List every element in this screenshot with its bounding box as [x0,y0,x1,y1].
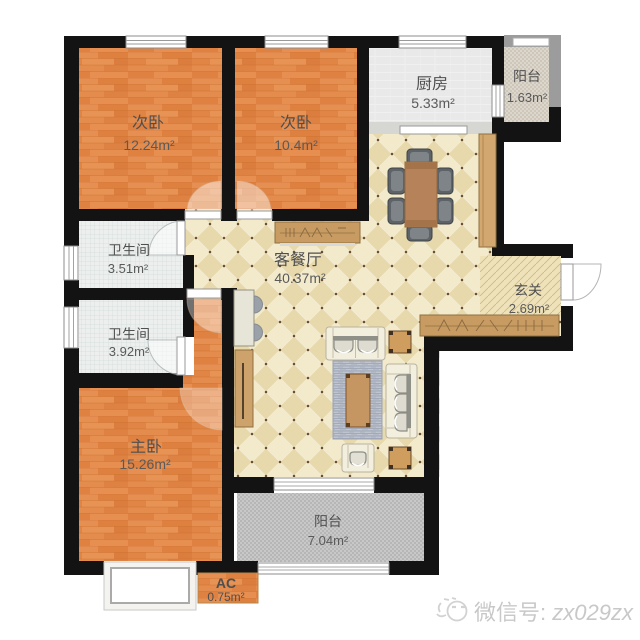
svg-text:2.69m²: 2.69m² [509,301,550,316]
svg-text:12.24m²: 12.24m² [123,137,175,153]
svg-text:15.26m²: 15.26m² [119,456,171,472]
svg-text:10.4m²: 10.4m² [274,137,318,153]
svg-text:3.92m²: 3.92m² [109,344,150,359]
svg-text:0.75m²: 0.75m² [207,590,244,604]
svg-text:5.33m²: 5.33m² [411,95,455,111]
svg-text:7.04m²: 7.04m² [308,533,349,548]
svg-text:: zx029zx: : zx029zx [540,600,634,625]
svg-text:40.37m²: 40.37m² [274,270,326,286]
svg-text:AC: AC [216,575,236,591]
svg-text:1.63m²: 1.63m² [507,90,548,105]
svg-text:3.51m²: 3.51m² [108,261,149,276]
